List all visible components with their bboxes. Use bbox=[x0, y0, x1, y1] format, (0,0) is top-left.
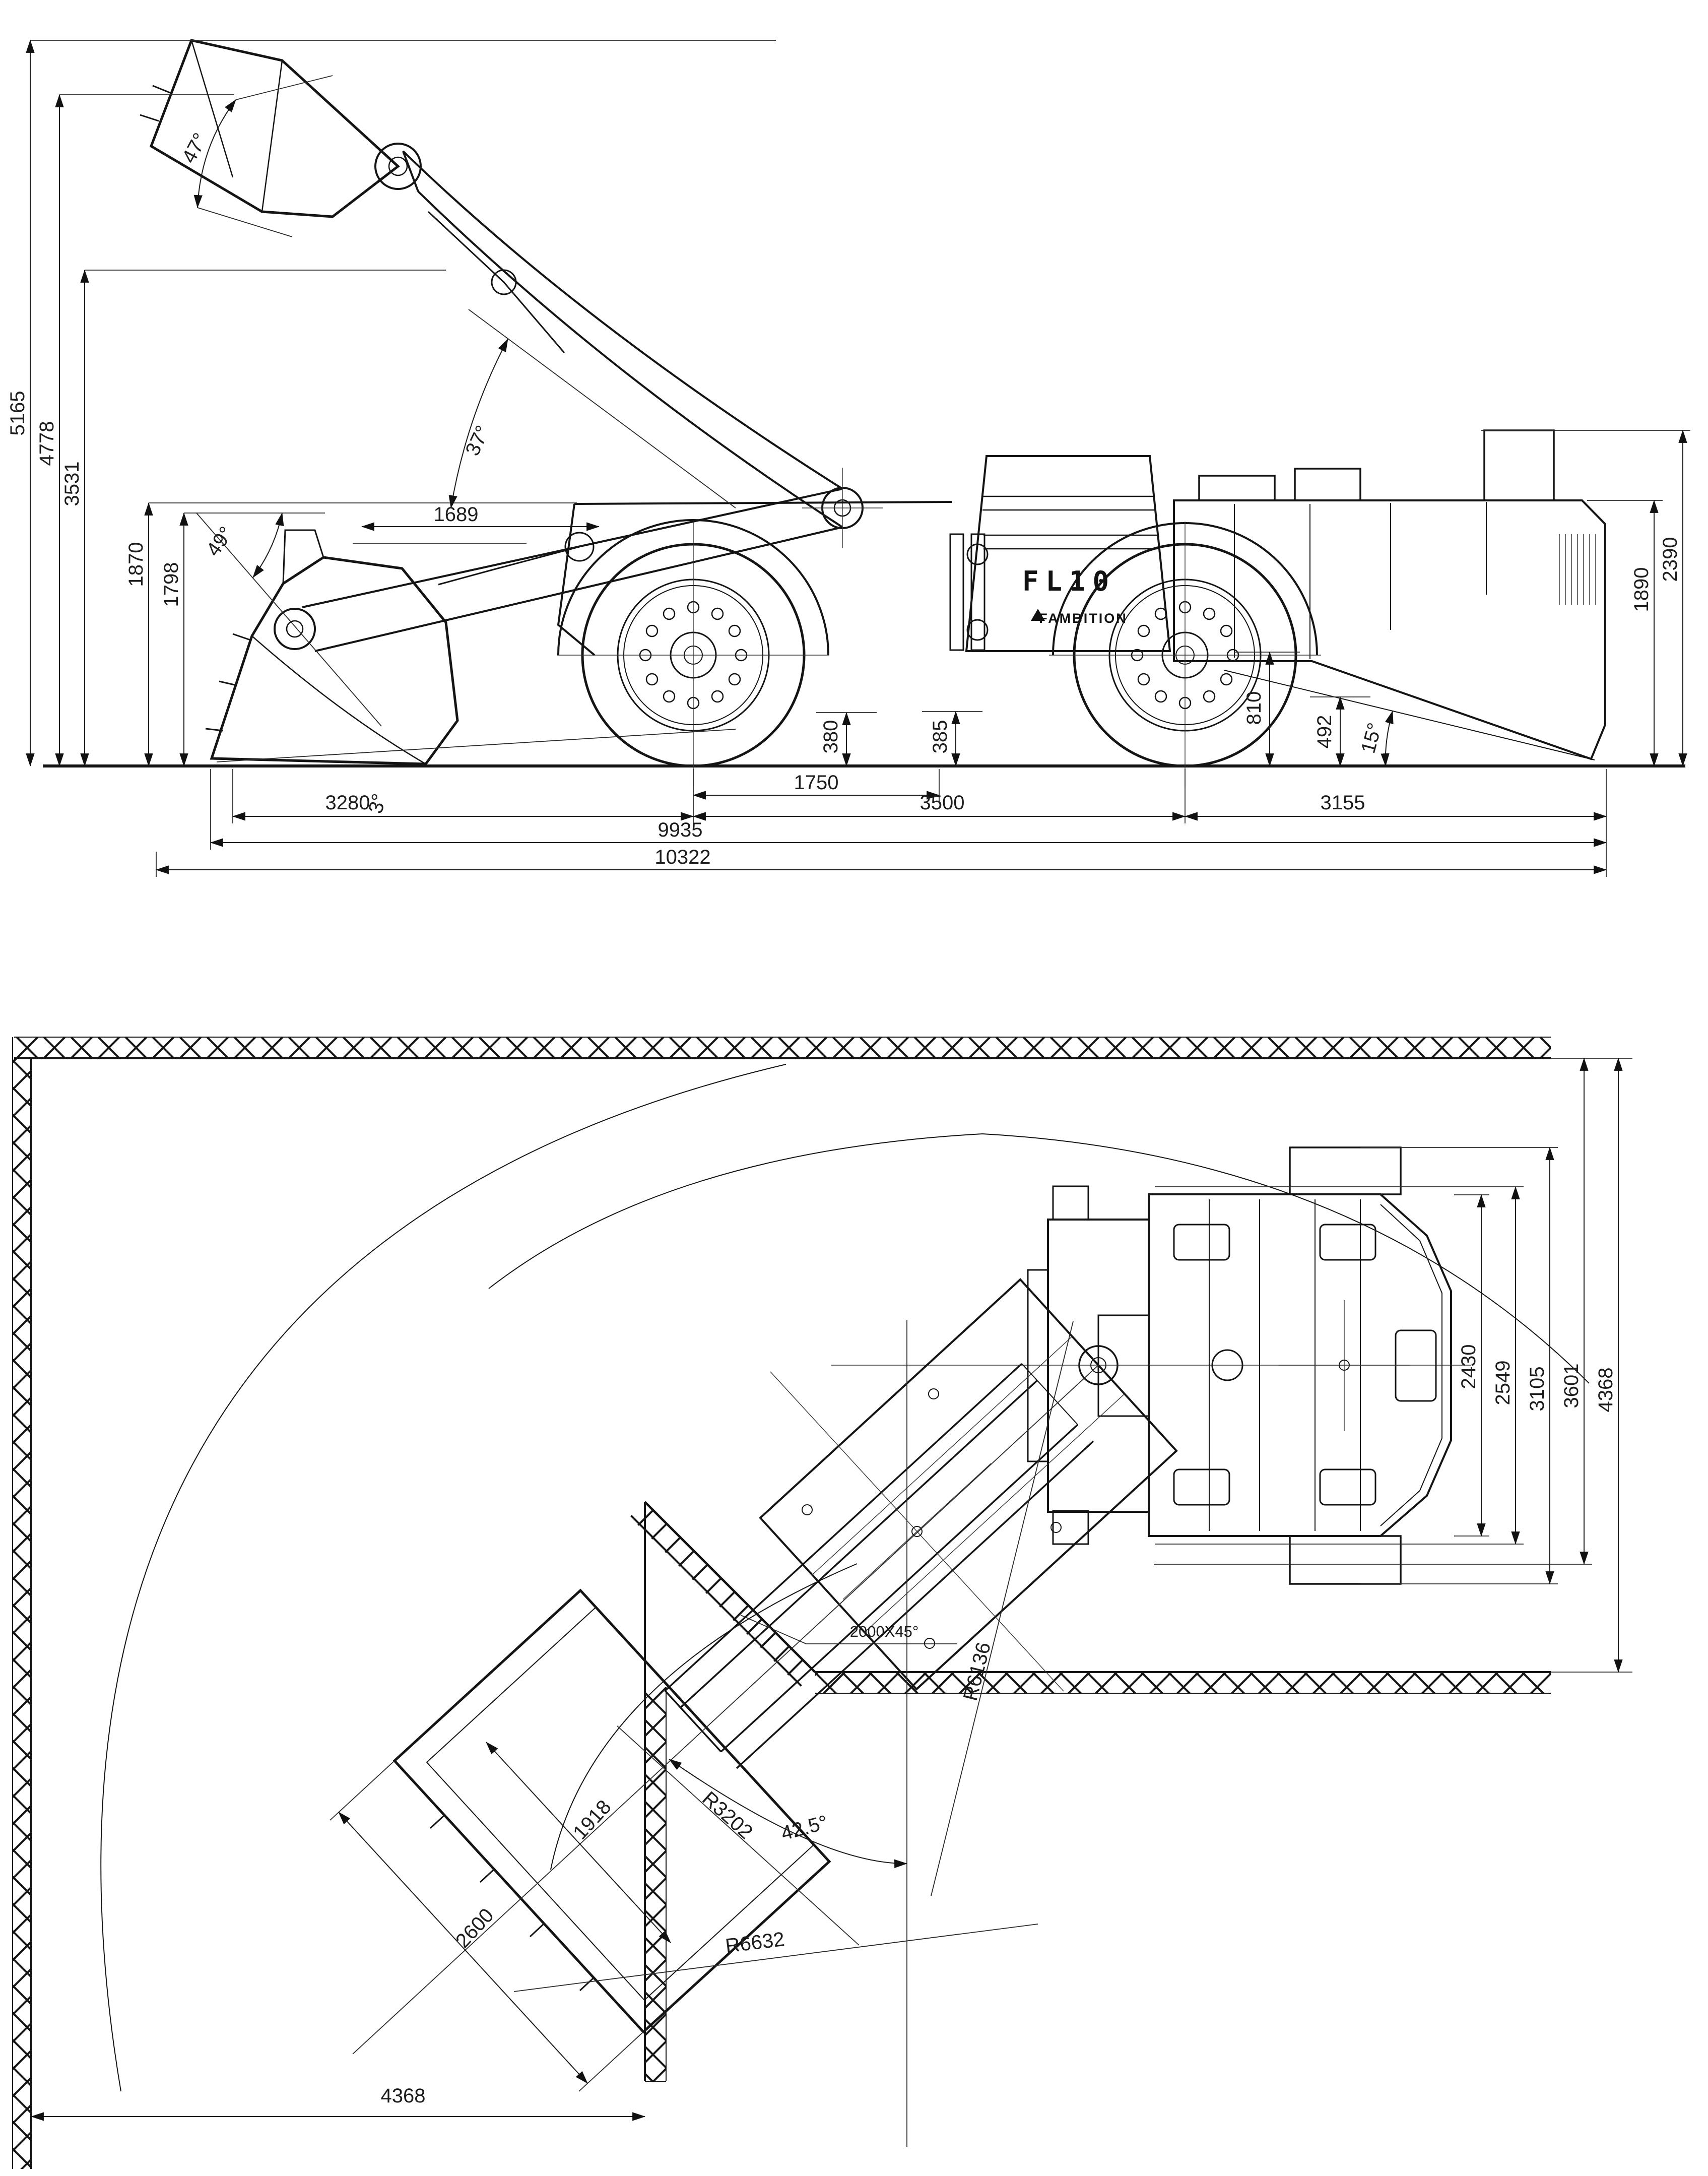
articulation-angle: 42.5° bbox=[353, 1320, 1098, 2147]
dim-height-1870: 1870 bbox=[125, 503, 577, 766]
tunnel-walls bbox=[13, 1037, 1632, 2169]
dim-label: 1890 bbox=[1630, 567, 1653, 612]
dim-length-3280: 3280 bbox=[233, 769, 693, 823]
dim-label: 4778 bbox=[36, 421, 58, 466]
dim-label: 2549 bbox=[1492, 1361, 1514, 1405]
dim-label: 4368 bbox=[381, 2085, 426, 2107]
dim-label: 1918 bbox=[569, 1796, 616, 1844]
raised-boom-and-bucket bbox=[140, 40, 842, 527]
dim-clearance-380: 380 bbox=[816, 713, 877, 766]
dim-height-3531: 3531 bbox=[61, 270, 446, 766]
dim-label: 9935 bbox=[658, 819, 703, 841]
dim-label: 4368 bbox=[1595, 1368, 1617, 1413]
left-wall-hatch bbox=[13, 1037, 31, 2169]
dim-label: 2600 bbox=[451, 1904, 498, 1952]
dim-clearance-492: 492 bbox=[1310, 697, 1370, 766]
angle-label: 37° bbox=[461, 422, 494, 459]
lhd-dimension-drawing: FL10 FAMBITION bbox=[0, 0, 1708, 2176]
angle-label: 47° bbox=[178, 130, 212, 167]
angle-label: 15° bbox=[1357, 721, 1386, 756]
dim-label: 5165 bbox=[7, 391, 29, 436]
top-wall-hatch bbox=[14, 1037, 1551, 1058]
radius-R6136: R6136 bbox=[931, 1321, 1073, 1896]
dim-label: 1689 bbox=[434, 503, 479, 526]
angle-3: 3° bbox=[217, 729, 736, 816]
dim-width-3601: 3601 bbox=[1154, 1058, 1592, 1564]
dim-label: 380 bbox=[820, 720, 842, 754]
rear-body-side bbox=[1174, 430, 1605, 760]
dim-label: 1870 bbox=[125, 542, 147, 587]
dim-label: 3531 bbox=[61, 462, 83, 506]
dim-label: 3500 bbox=[920, 792, 965, 814]
dim-reach-1689: 1689 bbox=[353, 503, 599, 543]
radius-label: R6632 bbox=[724, 1928, 785, 1957]
chamfer-label: 2000X45° bbox=[850, 1623, 919, 1640]
carry-boom-and-bucket bbox=[206, 468, 952, 764]
dim-label: 10322 bbox=[654, 846, 710, 868]
angle-49: 49° bbox=[196, 513, 381, 726]
drawing-sheet: FL10 FAMBITION bbox=[0, 0, 1708, 2176]
dim-bucket-1918: 1918 bbox=[486, 1742, 671, 1943]
dim-label: 385 bbox=[929, 720, 951, 754]
dim-height-1798: 1798 bbox=[160, 513, 325, 766]
rear-wheel bbox=[1049, 522, 1321, 787]
dim-length-1750: 1750 bbox=[693, 769, 939, 802]
rear-body-plan bbox=[1028, 1147, 1451, 1584]
dim-label: 1750 bbox=[794, 772, 839, 794]
dim-height-2390: 2390 bbox=[1481, 430, 1690, 766]
dim-label: 3155 bbox=[1321, 792, 1365, 814]
dim-height-4778: 4778 bbox=[36, 95, 234, 766]
dim-label: 3105 bbox=[1526, 1367, 1548, 1412]
dim-height-5165: 5165 bbox=[7, 40, 776, 766]
turning-arcs bbox=[101, 1064, 1589, 2091]
dim-label: 492 bbox=[1313, 715, 1336, 749]
radius-R6632: R6632 bbox=[514, 1924, 1038, 1992]
dim-label: 1798 bbox=[160, 562, 182, 607]
side-elevation-view: FL10 FAMBITION bbox=[7, 40, 1690, 877]
dim-label: 3601 bbox=[1560, 1364, 1583, 1409]
front-wheel bbox=[557, 520, 829, 787]
angle-37: 37° bbox=[451, 309, 736, 508]
dim-width-2430: 2430 bbox=[1454, 1195, 1489, 1536]
dim-length-9935: 9935 bbox=[211, 769, 1606, 850]
dim-label: 2390 bbox=[1659, 537, 1681, 582]
dim-label: 810 bbox=[1243, 691, 1265, 725]
dim-width-4368: 4368 bbox=[1595, 1058, 1618, 1672]
inner-wall-hatch-h bbox=[815, 1672, 1551, 1693]
dim-clearance-385: 385 bbox=[922, 712, 982, 766]
chamfer-hatch bbox=[630, 1502, 815, 1687]
dim-label: 3280 bbox=[325, 792, 370, 814]
angle-47: 47° bbox=[178, 76, 333, 237]
plan-turning-view: 42.5° R3202 R6632 R6136 2000X45° 1918 bbox=[13, 1037, 1632, 2169]
dim-label: 2430 bbox=[1458, 1345, 1480, 1389]
dim-length-10322: 10322 bbox=[156, 846, 1606, 877]
radius-label: R3202 bbox=[698, 1787, 757, 1844]
dim-length-3155: 3155 bbox=[1185, 769, 1606, 823]
dim-drift-4368: 4368 bbox=[31, 2085, 645, 2117]
radiator-grille bbox=[1559, 534, 1596, 605]
angle-15: 15° bbox=[1357, 711, 1393, 766]
dim-height-1890: 1890 bbox=[1587, 500, 1663, 766]
